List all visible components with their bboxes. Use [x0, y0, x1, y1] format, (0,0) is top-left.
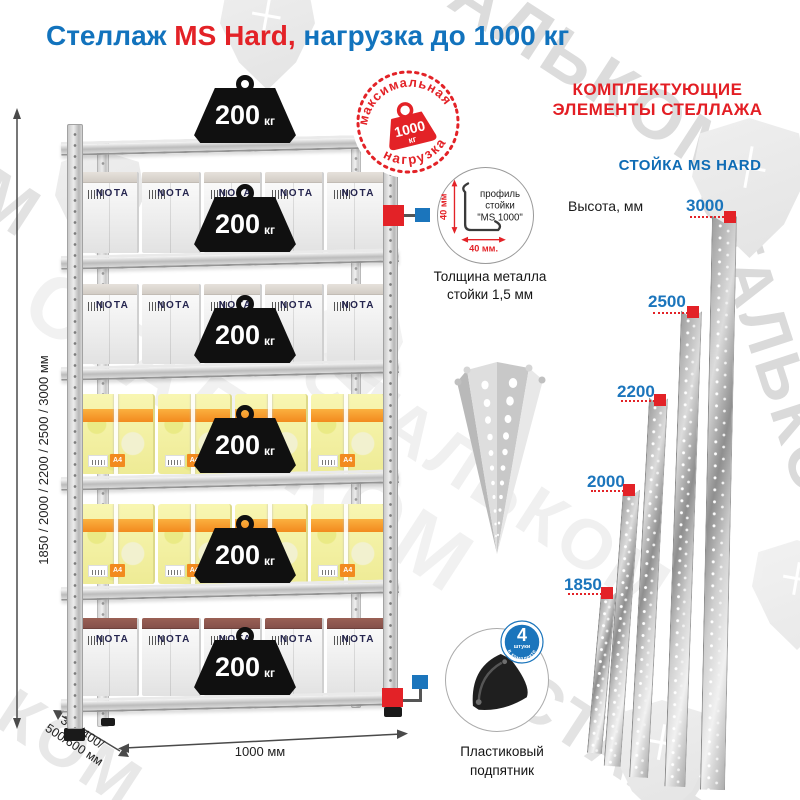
profile-text-2: стойки: [485, 201, 515, 212]
height-options-label: 1850 / 2000 / 2200 / 2500 / 3000 мм: [36, 300, 52, 620]
post-2200: [629, 398, 668, 778]
a4-label: А4: [110, 454, 125, 467]
a4-label: А4: [340, 454, 355, 467]
weight-value: 200: [215, 320, 260, 351]
box-brand-label: NOTA: [157, 300, 191, 311]
paper-box: NOTA: [81, 284, 139, 364]
shield-logo-watermark: [692, 118, 800, 258]
paper-pack: А4: [311, 394, 385, 474]
paper-pack: А4: [311, 504, 385, 584]
weight-icon: 200кг: [193, 627, 297, 695]
weight-icon: 200кг: [193, 184, 297, 252]
callout-line: [402, 214, 416, 217]
product-diagram: СТАЛЬКОМ СТАЛЬКОМ СТАЛЬКОМ СТАЛЬКОМ СТАЛ…: [0, 0, 800, 800]
plastic-foot-caption: Пластиковый подпятник: [432, 742, 572, 780]
components-heading: КОМПЛЕКТУЮЩИЕ ЭЛЕМЕНТЫ СТЕЛЛАЖА: [540, 80, 775, 120]
a4-label: А4: [340, 564, 355, 577]
badge-count-unit: штуки: [514, 644, 531, 650]
rack-foot: [384, 707, 402, 717]
weight-unit: кг: [264, 444, 275, 458]
post-section-subheading: СТОЙКА MS HARD: [595, 157, 785, 174]
leader-marker: [601, 587, 613, 599]
post-height-label-2500: 2500: [648, 292, 686, 312]
weight-icon: 200кг: [193, 515, 297, 583]
profile-text-3: "MS 1000": [477, 212, 523, 223]
callout-marker-foot-ref: [412, 675, 428, 689]
title-part-2: MS Hard,: [174, 20, 295, 51]
weight-unit: кг: [264, 114, 275, 128]
weight-value: 200: [215, 540, 260, 571]
weight-unit: кг: [264, 334, 275, 348]
leader-marker: [654, 394, 666, 406]
weight-value: 200: [215, 652, 260, 683]
box-brand-label: NOTA: [157, 188, 191, 199]
weight-icon: 200кг: [193, 75, 297, 143]
leader-dots: [591, 490, 624, 492]
components-heading-line-2: ЭЛЕМЕНТЫ СТЕЛЛАЖА: [540, 100, 775, 120]
paper-box: NOTA: [81, 618, 139, 696]
box-brand-label: NOTA: [96, 300, 130, 311]
paper-pack: А4: [81, 504, 155, 584]
rack-post-front-left: [67, 124, 83, 729]
rack-foot: [64, 728, 85, 741]
rack-post-front-right: [383, 142, 398, 708]
weight-icon: 200кг: [193, 405, 297, 473]
badge-count: 4: [517, 625, 527, 645]
callout-marker-foot: [382, 688, 403, 707]
barcode-label: [318, 565, 338, 577]
weight-value: 200: [215, 430, 260, 461]
quantity-badge: 4 штуки в комплекте: [500, 620, 544, 664]
profile-text-1: профиль: [480, 189, 520, 200]
shield-logo-watermark: [752, 540, 800, 650]
dimension-line-height: [8, 106, 28, 731]
post-height-label-3000: 3000: [686, 196, 724, 216]
thickness-caption: Толщина металла стойки 1,5 мм: [420, 268, 560, 304]
barcode-label: [88, 455, 108, 467]
weight-unit: кг: [264, 666, 275, 680]
box-brand-label: NOTA: [341, 634, 375, 645]
foot-caption-line-2: подпятник: [432, 761, 572, 780]
barcode-label: [318, 455, 338, 467]
post-height-label-1850: 1850: [564, 575, 602, 595]
components-heading-line-1: КОМПЛЕКТУЮЩИЕ: [540, 80, 775, 100]
foot-caption-line-1: Пластиковый: [432, 742, 572, 761]
leader-marker: [724, 211, 736, 223]
a4-label: А4: [110, 564, 125, 577]
leader-dots: [690, 216, 724, 218]
callout-marker-profile: [415, 208, 430, 222]
profile-dim-horizontal: 40 мм.: [469, 243, 498, 253]
weight-unit: кг: [264, 554, 275, 568]
profile-dim-vertical: 40 мм: [439, 193, 449, 220]
weight-icon: 200кг: [193, 295, 297, 363]
title-part-1: Стеллаж: [46, 20, 174, 51]
post-height-label-2000: 2000: [587, 472, 625, 492]
callout-marker-post: [383, 205, 404, 226]
corner-post-image: [447, 358, 553, 563]
box-brand-label: NOTA: [96, 634, 130, 645]
leader-dots: [568, 593, 602, 595]
callout-line: [403, 699, 420, 702]
thickness-line-1: Толщина металла: [420, 268, 560, 286]
post-profile-detail: 40 мм 40 мм. профиль стойки "MS 1000": [437, 167, 534, 264]
box-brand-label: NOTA: [341, 300, 375, 311]
weight-value: 200: [215, 100, 260, 131]
title-part-3: нагрузка до 1000 кг: [296, 20, 570, 51]
leader-marker: [687, 306, 699, 318]
post-3000: [700, 216, 737, 790]
page-title: Стеллаж MS Hard, нагрузка до 1000 кг: [46, 20, 569, 52]
box-brand-label: NOTA: [157, 634, 191, 645]
shield-logo-watermark: [612, 700, 712, 800]
box-brand-label: NOTA: [96, 188, 130, 199]
weight-unit: кг: [264, 223, 275, 237]
post-2500: [664, 311, 702, 787]
paper-box: NOTA: [81, 172, 139, 253]
barcode-label: [165, 565, 185, 577]
weight-value: 200: [215, 209, 260, 240]
paper-box: NOTA: [327, 284, 385, 364]
leader-dots: [653, 312, 688, 314]
leader-dots: [621, 400, 655, 402]
barcode-label: [165, 455, 185, 467]
rack-foot: [101, 718, 115, 726]
height-units-label: Высота, мм: [568, 198, 643, 214]
thickness-line-2: стойки 1,5 мм: [420, 286, 560, 304]
barcode-label: [88, 565, 108, 577]
paper-pack: А4: [81, 394, 155, 474]
leader-marker: [623, 484, 635, 496]
paper-box: NOTA: [327, 618, 385, 696]
post-height-label-2200: 2200: [617, 382, 655, 402]
